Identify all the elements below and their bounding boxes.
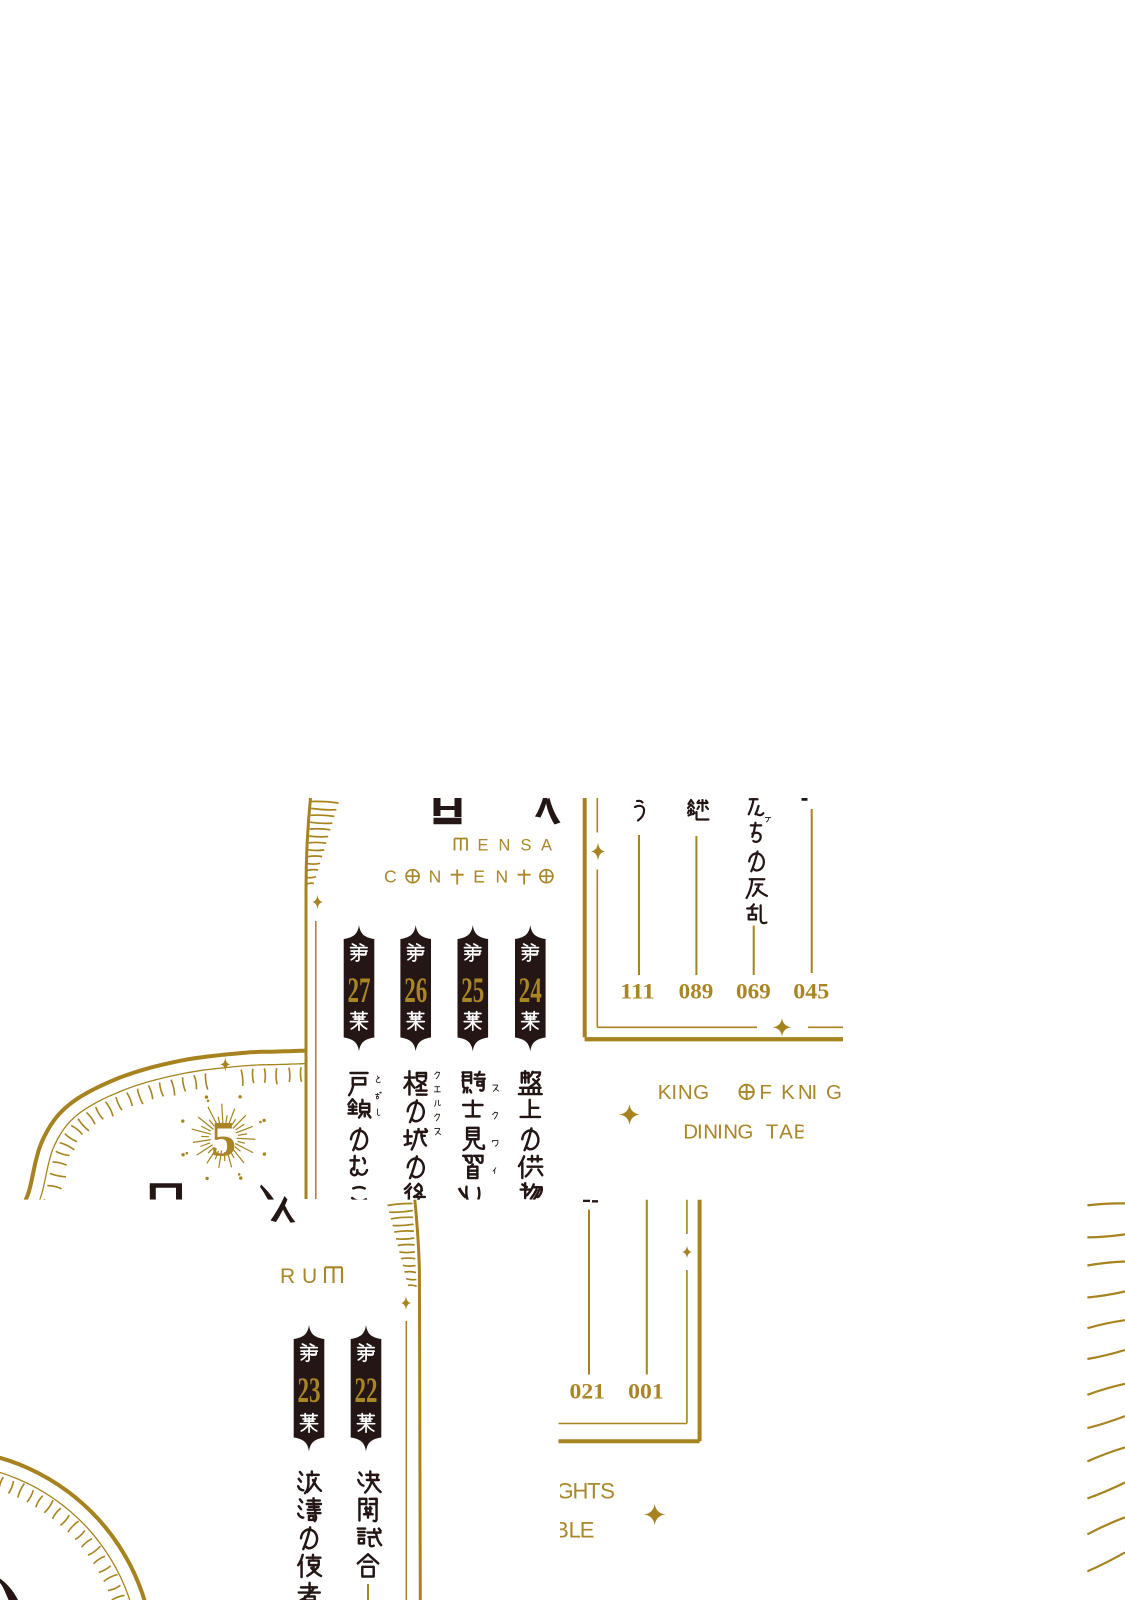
svg-text:T: T (766, 1120, 779, 1143)
svg-text:045: 045 (793, 979, 829, 1004)
svg-text:021: 021 (570, 1379, 606, 1404)
svg-text:K: K (658, 1081, 672, 1104)
svg-text:U: U (302, 1265, 317, 1288)
svg-text:G: G (693, 1081, 709, 1104)
svg-text:27: 27 (348, 970, 371, 1010)
svg-text:N: N (798, 1081, 813, 1104)
svg-text:N: N (723, 1120, 738, 1143)
svg-text:I: I (812, 1081, 818, 1104)
svg-text:E: E (478, 837, 489, 855)
svg-text:111: 111 (620, 979, 655, 1004)
svg-text:A: A (779, 1120, 793, 1143)
svg-text:22: 22 (355, 1370, 378, 1410)
svg-text:N: N (429, 867, 442, 887)
svg-text:H: H (573, 1479, 589, 1504)
svg-text:26: 26 (404, 970, 427, 1010)
svg-text:25: 25 (461, 970, 484, 1010)
svg-text:I: I (697, 1120, 703, 1143)
svg-text:N: N (496, 867, 509, 887)
svg-text:23: 23 (298, 1370, 321, 1410)
svg-text:069: 069 (736, 979, 771, 1004)
svg-text:S: S (521, 837, 532, 855)
svg-text:C: C (384, 867, 397, 887)
svg-text:N: N (499, 837, 511, 855)
svg-text:E: E (580, 1518, 595, 1543)
svg-text:T: T (587, 1479, 600, 1504)
svg-text:S: S (600, 1479, 615, 1504)
svg-text:A: A (541, 837, 552, 855)
svg-text:N: N (678, 1081, 693, 1104)
svg-text:G: G (737, 1120, 753, 1143)
svg-text:E: E (473, 867, 485, 887)
svg-text:F: F (759, 1081, 772, 1104)
svg-text:R: R (280, 1265, 295, 1288)
svg-text:N: N (703, 1120, 718, 1143)
svg-text:001: 001 (628, 1379, 664, 1404)
svg-text:I: I (671, 1081, 677, 1104)
svg-text:5: 5 (211, 1111, 236, 1167)
svg-text:D: D (683, 1120, 698, 1143)
svg-text:G: G (826, 1081, 842, 1104)
svg-text:24: 24 (519, 970, 542, 1010)
svg-text:K: K (781, 1081, 795, 1104)
svg-text:089: 089 (679, 979, 714, 1004)
svg-text:I: I (717, 1120, 723, 1143)
